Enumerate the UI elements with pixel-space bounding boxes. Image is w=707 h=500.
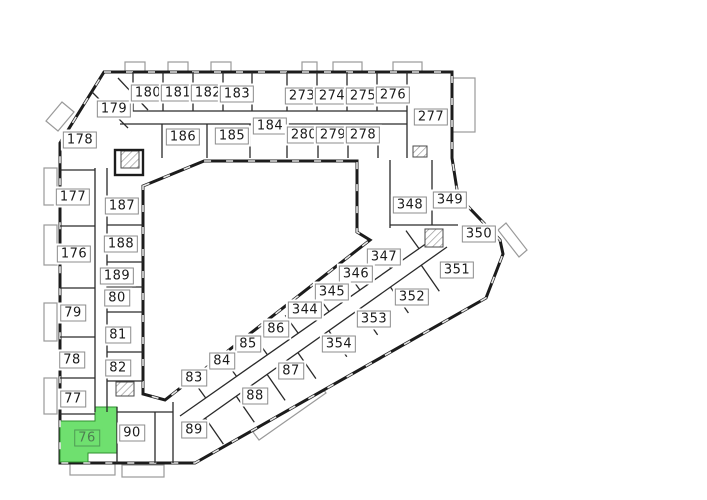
unit-label-183[interactable]: 183	[220, 86, 254, 103]
unit-label-347[interactable]: 347	[367, 249, 401, 266]
unit-label-184[interactable]: 184	[253, 118, 287, 135]
unit-label-76[interactable]: 76	[74, 430, 100, 447]
unit-label-88[interactable]: 88	[242, 388, 268, 405]
unit-label-276[interactable]: 276	[376, 87, 410, 104]
unit-label-348[interactable]: 348	[393, 197, 427, 214]
unit-label-350[interactable]: 350	[462, 226, 496, 243]
unit-label-179[interactable]: 179	[97, 101, 131, 118]
unit-label-188[interactable]: 188	[104, 236, 138, 253]
unit-label-278[interactable]: 278	[346, 127, 380, 144]
unit-label-85[interactable]: 85	[235, 336, 261, 353]
unit-label-79[interactable]: 79	[60, 305, 86, 322]
unit-label-78[interactable]: 78	[59, 352, 85, 369]
unit-label-89[interactable]: 89	[181, 422, 207, 439]
unit-label-86[interactable]: 86	[263, 321, 289, 338]
unit-label-176[interactable]: 176	[57, 246, 91, 263]
unit-label-352[interactable]: 352	[395, 289, 429, 306]
unit-label-186[interactable]: 186	[166, 129, 200, 146]
unit-label-90[interactable]: 90	[119, 425, 145, 442]
unit-label-77[interactable]: 77	[60, 391, 86, 408]
unit-label-189[interactable]: 189	[100, 268, 134, 285]
unit-label-84[interactable]: 84	[209, 353, 235, 370]
unit-labels: 1791801811821832732742752762771781861851…	[0, 0, 707, 500]
unit-label-81[interactable]: 81	[105, 327, 131, 344]
unit-label-187[interactable]: 187	[105, 198, 139, 215]
unit-label-354[interactable]: 354	[322, 336, 356, 353]
floor-plan: 1791801811821832732742752762771781861851…	[0, 0, 707, 500]
unit-label-344[interactable]: 344	[288, 302, 322, 319]
unit-label-80[interactable]: 80	[104, 290, 130, 307]
unit-label-87[interactable]: 87	[278, 363, 304, 380]
unit-label-82[interactable]: 82	[105, 360, 131, 377]
unit-label-83[interactable]: 83	[181, 370, 207, 387]
unit-label-185[interactable]: 185	[215, 128, 249, 145]
unit-label-346[interactable]: 346	[339, 266, 373, 283]
unit-label-349[interactable]: 349	[433, 192, 467, 209]
unit-label-274[interactable]: 274	[315, 88, 349, 105]
unit-label-178[interactable]: 178	[63, 132, 97, 149]
unit-label-177[interactable]: 177	[56, 189, 90, 206]
unit-label-351[interactable]: 351	[440, 262, 474, 279]
unit-label-277[interactable]: 277	[414, 109, 448, 126]
unit-label-345[interactable]: 345	[315, 284, 349, 301]
unit-label-353[interactable]: 353	[357, 311, 391, 328]
